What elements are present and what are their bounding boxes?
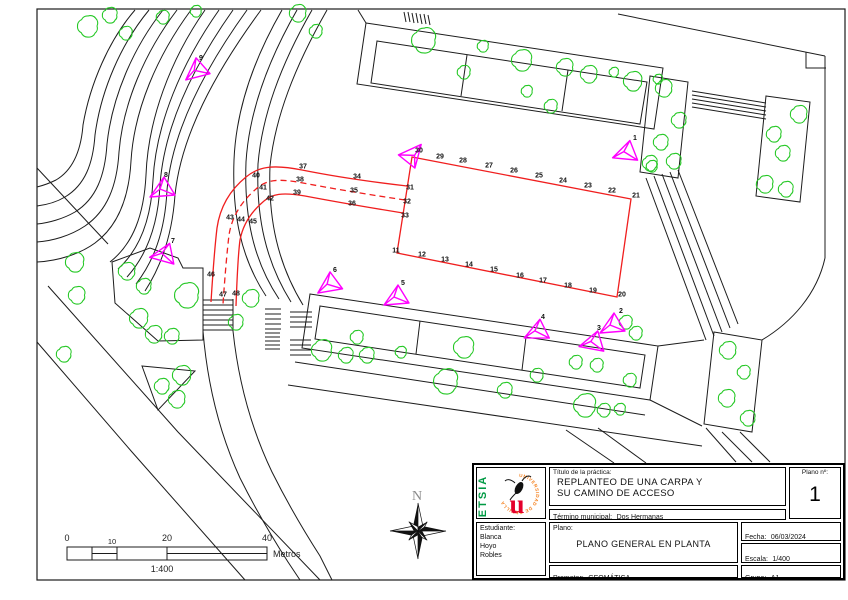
date-label: Fecha: — [745, 534, 766, 541]
tree-icon — [242, 289, 259, 307]
plan-name-cell: Plano: PLANO GENERAL EN PLANTA — [549, 522, 738, 563]
tree-icon — [642, 155, 657, 171]
title-block: ETSIA UNIVERSIDAD DE SEVILLA u Título de… — [472, 463, 845, 580]
point-label: 28 — [459, 158, 467, 165]
tree-icon — [511, 50, 531, 72]
practice-title-line2: SU CAMINO DE ACCESO — [553, 488, 782, 499]
tree-icon — [619, 315, 632, 329]
point-label: 42 — [266, 196, 274, 203]
station-marker — [150, 177, 175, 197]
station-triangle-icon — [398, 144, 428, 171]
scale-label: Escala: — [745, 556, 768, 563]
station-triangle-icon — [384, 285, 409, 305]
stations-layer: 123456789 — [150, 55, 641, 353]
station-label: 7 — [171, 238, 175, 245]
tree-icon — [68, 286, 85, 304]
plan-number-value: 1 — [790, 477, 840, 513]
tree-icon — [756, 175, 773, 193]
tree-icon — [497, 382, 512, 398]
practice-title-label: Título de la práctica: — [553, 469, 782, 477]
point-label: 21 — [632, 193, 640, 200]
point-label: 38 — [296, 177, 304, 184]
date-value: 06/03/2024 — [771, 534, 806, 541]
trees-layer — [56, 4, 807, 426]
tree-icon — [154, 378, 169, 394]
point-label: 32 — [403, 199, 411, 206]
compass-star-icon — [390, 503, 446, 559]
point-label: 24 — [559, 178, 567, 185]
access-path-centerline — [223, 180, 405, 304]
point-label: 34 — [353, 174, 361, 181]
point-label: 37 — [299, 164, 307, 171]
point-label: 30 — [415, 148, 423, 155]
station-label: 8 — [164, 172, 168, 179]
point-label: 18 — [564, 283, 572, 290]
station-label: 1 — [633, 135, 637, 142]
tree-icon — [164, 328, 179, 344]
group-label: Grupo: — [745, 575, 766, 578]
station-marker — [182, 56, 210, 80]
point-label: 43 — [226, 215, 234, 222]
tree-icon — [740, 410, 755, 426]
point-label: 13 — [441, 257, 449, 264]
tree-icon — [56, 346, 71, 362]
tree-icon — [145, 325, 162, 343]
point-label: 23 — [584, 183, 592, 190]
tree-icon — [623, 373, 636, 387]
plan-number-cell: Plano nº: 1 — [789, 467, 841, 519]
tree-icon — [718, 389, 735, 407]
promoter-value: GEOMÁTICA — [588, 575, 630, 578]
tree-icon — [655, 79, 672, 97]
promoter-label: Promotor: — [553, 575, 584, 578]
tree-icon — [614, 403, 625, 415]
station-triangle-icon — [182, 56, 210, 80]
station-label: 2 — [619, 308, 623, 315]
station-marker — [316, 271, 343, 293]
group-cell: Grupo: A1 — [741, 565, 841, 578]
scale-tick-40: 40 — [262, 533, 272, 543]
point-label: 27 — [485, 163, 493, 170]
planters — [640, 76, 810, 432]
point-label: 26 — [510, 168, 518, 175]
point-label: 45 — [249, 219, 257, 226]
municipality-label: Término municipal: — [553, 514, 612, 520]
point-label: 41 — [259, 185, 267, 192]
practice-title-cell: Título de la práctica: REPLANTEO DE UNA … — [549, 467, 786, 506]
station-marker — [398, 144, 428, 171]
plan-name-value: PLANO GENERAL EN PLANTA — [553, 539, 734, 549]
point-label: 20 — [618, 292, 626, 299]
point-label: 25 — [535, 173, 543, 180]
point-label: 36 — [348, 201, 356, 208]
station-label: 6 — [333, 267, 337, 274]
tree-icon — [77, 16, 97, 38]
building-south — [302, 294, 658, 400]
tree-icon — [574, 394, 596, 418]
point-label: 22 — [608, 188, 616, 195]
tree-icon — [118, 262, 135, 280]
scale-value: 1/400 — [772, 556, 790, 563]
top-steps-hatch — [404, 12, 430, 25]
tree-icon — [521, 85, 532, 97]
tree-icon — [65, 252, 83, 272]
etsia-text: ETSIA — [477, 475, 489, 517]
tree-icon — [168, 390, 185, 408]
tree-icon — [737, 365, 750, 379]
point-label: 16 — [516, 273, 524, 280]
municipality-cell: Término municipal: Dos Hermanas — [549, 509, 786, 520]
plaza — [112, 248, 203, 341]
student-cell: Estudiante: Blanca Hoyo Robles — [476, 522, 546, 576]
north-arrow: N — [390, 489, 446, 559]
point-label: 17 — [539, 278, 547, 285]
station-triangle-icon — [600, 313, 625, 333]
point-label: 47 — [219, 292, 227, 299]
point-label: 48 — [232, 291, 240, 298]
tree-icon — [790, 105, 807, 123]
point-label: 31 — [406, 185, 414, 192]
tree-icon — [453, 337, 473, 359]
station-label: 4 — [541, 314, 545, 321]
point-label: 40 — [252, 173, 260, 180]
tree-icon — [778, 181, 793, 197]
scale-tick-0: 0 — [64, 533, 69, 543]
point-label: 35 — [350, 188, 358, 195]
drawing-sheet: 123456789 111213141516171819202122232425… — [0, 0, 848, 600]
tree-icon — [666, 153, 681, 169]
tree-icon — [719, 341, 736, 359]
student-label: Estudiante: — [480, 524, 542, 533]
tree-icon — [175, 283, 199, 308]
point-label: 19 — [589, 288, 597, 295]
point-label: 14 — [465, 262, 473, 269]
tree-icon — [477, 40, 488, 52]
point-label: 12 — [418, 252, 426, 259]
student-line: Blanca — [480, 533, 542, 542]
point-label: 39 — [293, 190, 301, 197]
station-marker — [600, 313, 625, 333]
tree-icon — [172, 365, 190, 385]
station-label: 3 — [597, 325, 601, 332]
promoter-cell: Promotor: GEOMÁTICA — [549, 565, 738, 578]
scale-ratio: 1:400 — [151, 564, 174, 574]
station-label: 9 — [199, 55, 203, 62]
scale-unit: Metros — [273, 549, 301, 559]
tree-icon — [629, 326, 642, 340]
tree-icon — [228, 314, 243, 330]
walkway-curves — [234, 10, 327, 305]
north-label: N — [412, 489, 422, 504]
point-label: 33 — [401, 213, 409, 220]
tree-icon — [544, 99, 557, 113]
station-triangle-icon — [316, 271, 343, 293]
point-label: 44 — [237, 217, 245, 224]
tree-icon — [530, 368, 543, 382]
group-value: A1 — [771, 575, 780, 578]
point-label: 15 — [490, 267, 498, 274]
tree-icon — [350, 330, 363, 344]
tree-icon — [190, 5, 201, 17]
station-marker — [384, 285, 409, 305]
student-line: Hoyo — [480, 542, 542, 551]
tree-icon — [359, 347, 374, 363]
tree-icon — [590, 358, 603, 372]
scale-cell: Escala: 1/400 — [741, 543, 841, 563]
scale-tick-20: 20 — [162, 533, 172, 543]
tree-icon — [569, 355, 582, 369]
scale-bar: 0 10 20 40 Metros 1:400 — [64, 533, 301, 574]
station-label: 5 — [401, 280, 405, 287]
carpa-outline — [397, 157, 631, 297]
station-triangle-icon — [150, 177, 175, 197]
point-label: 11 — [392, 248, 400, 255]
plan-number-label: Plano nº: — [790, 469, 840, 477]
tree-icon — [156, 10, 169, 24]
tree-icon — [597, 403, 610, 417]
tree-icon — [434, 369, 458, 394]
scale-tick-10: 10 — [108, 537, 116, 546]
point-label: 46 — [207, 272, 215, 279]
tree-icon — [766, 126, 781, 142]
etsia-logo: ETSIA UNIVERSIDAD DE SEVILLA u — [476, 467, 546, 519]
points-layer: 1112131415161718192021222324252627282930… — [207, 148, 640, 299]
municipality-value: Dos Hermanas — [617, 514, 664, 520]
tree-icon — [556, 58, 573, 76]
tree-icon — [653, 134, 668, 150]
tree-icon — [775, 145, 790, 161]
date-cell: Fecha: 06/03/2024 — [741, 522, 841, 541]
tree-icon — [609, 67, 618, 77]
student-line: Robles — [480, 551, 542, 560]
tree-icon — [102, 7, 117, 23]
point-label: 29 — [436, 154, 444, 161]
plan-name-label: Plano: — [553, 524, 734, 533]
practice-title-line1: REPLANTEO DE UNA CARPA Y — [553, 477, 782, 488]
